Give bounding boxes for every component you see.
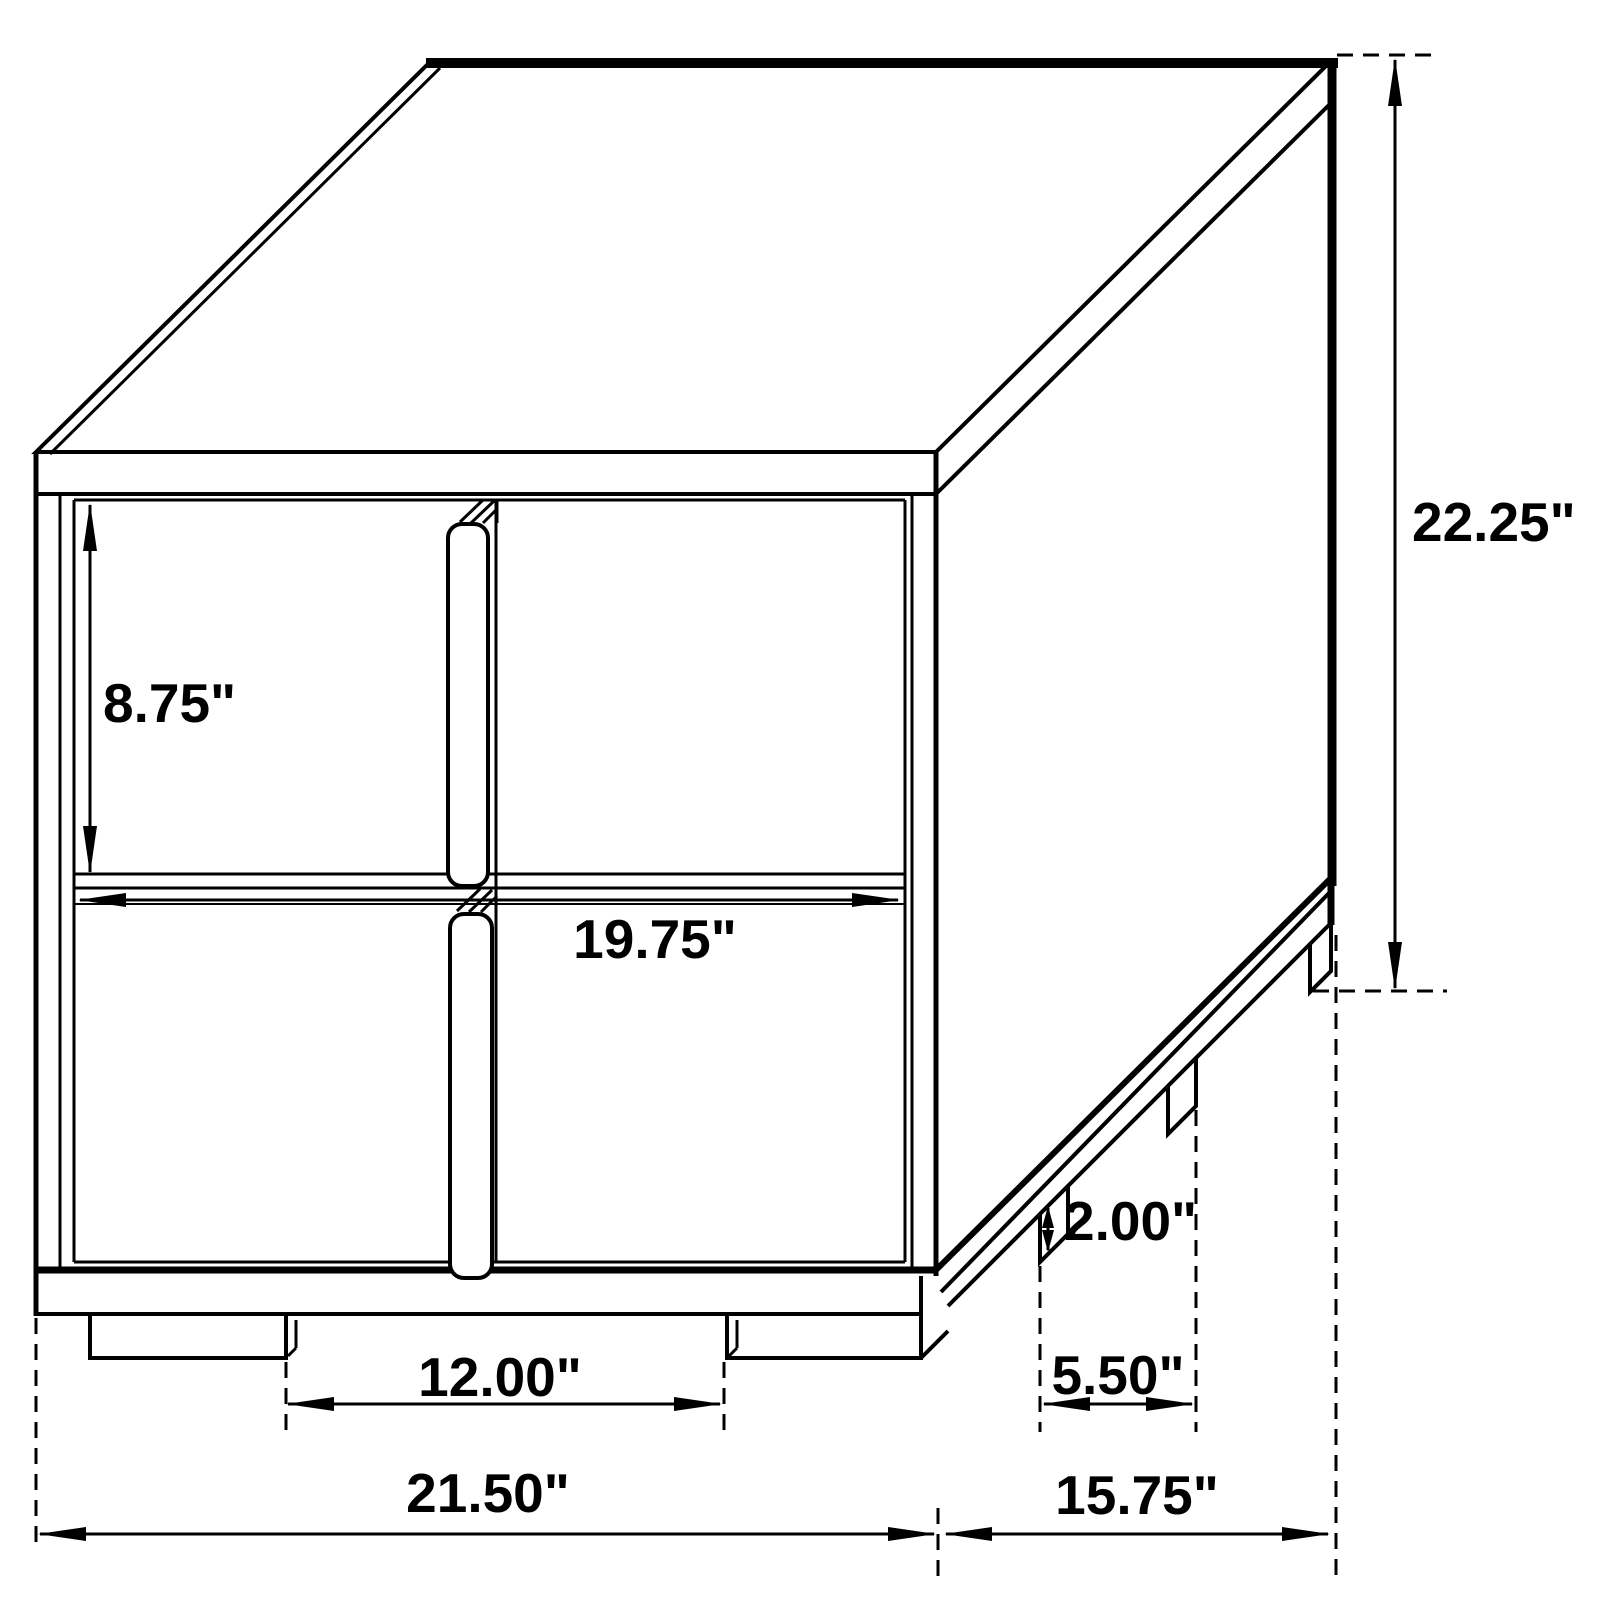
front-right-leg xyxy=(727,1314,921,1358)
dim-label-leg-height: 2.00" xyxy=(1064,1190,1197,1252)
dim-label-front-leg-gap: 12.00" xyxy=(418,1346,582,1408)
front-right-leg-corner-wrap xyxy=(921,1331,948,1358)
dim-front-leg-gap: 12.00" xyxy=(286,1346,724,1430)
dim-side-leg-gap: 5.50" xyxy=(1040,1110,1196,1432)
dim-label-overall-depth: 15.75" xyxy=(1055,1464,1219,1526)
dim-label-drawer-height: 8.75" xyxy=(103,672,236,734)
front-left-leg xyxy=(90,1314,286,1358)
dim-overall-depth: 15.75" xyxy=(944,935,1336,1578)
upper-drawer-handle xyxy=(448,524,488,886)
side-leg-back xyxy=(1310,923,1331,992)
nightstand-dimension-diagram: 8.75" 19.75" 22.25" 2.00" 12.00" 5.50" xyxy=(0,0,1600,1600)
dim-label-drawer-front-width: 19.75" xyxy=(573,908,737,970)
diagram-canvas: 8.75" 19.75" 22.25" 2.00" 12.00" 5.50" xyxy=(0,0,1600,1600)
dim-label-overall-width: 21.50" xyxy=(406,1462,570,1524)
upper-handle-hatch xyxy=(460,500,497,523)
dim-leg-height: 2.00" xyxy=(1042,1190,1197,1252)
front-right-leg-side-bevel xyxy=(729,1348,737,1356)
front-left-leg-side-bevel xyxy=(288,1348,296,1356)
side-leg-middle xyxy=(1168,1058,1196,1134)
dim-drawer-height: 8.75" xyxy=(83,503,236,874)
top-panel xyxy=(36,60,1338,494)
top-surface xyxy=(36,60,1332,452)
dim-label-overall-height: 22.25" xyxy=(1412,491,1576,553)
lower-drawer-handle xyxy=(450,914,492,1278)
dim-overall-height: 22.25" xyxy=(1313,55,1576,991)
dim-label-side-leg-gap: 5.50" xyxy=(1051,1344,1184,1406)
